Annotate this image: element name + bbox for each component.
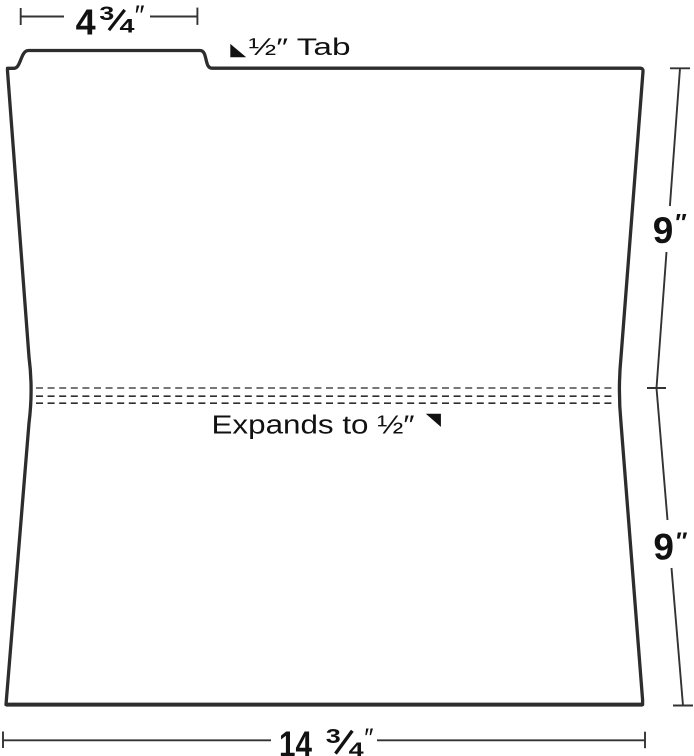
svg-text:″: ″ <box>675 210 687 237</box>
svg-text:½″ Tab: ½″ Tab <box>249 34 351 61</box>
svg-text:4: 4 <box>349 740 365 756</box>
svg-text:4: 4 <box>76 1 96 42</box>
svg-text:14: 14 <box>279 723 313 756</box>
svg-text:9: 9 <box>653 527 674 568</box>
svg-text:Expands to ½″: Expands to ½″ <box>212 411 415 439</box>
svg-text:″: ″ <box>676 528 688 555</box>
svg-text:″: ″ <box>364 723 373 753</box>
svg-text:″: ″ <box>135 0 145 30</box>
svg-text:3: 3 <box>326 726 341 748</box>
svg-text:9: 9 <box>653 210 674 251</box>
svg-text:4: 4 <box>120 17 136 38</box>
svg-text:3: 3 <box>99 4 114 25</box>
